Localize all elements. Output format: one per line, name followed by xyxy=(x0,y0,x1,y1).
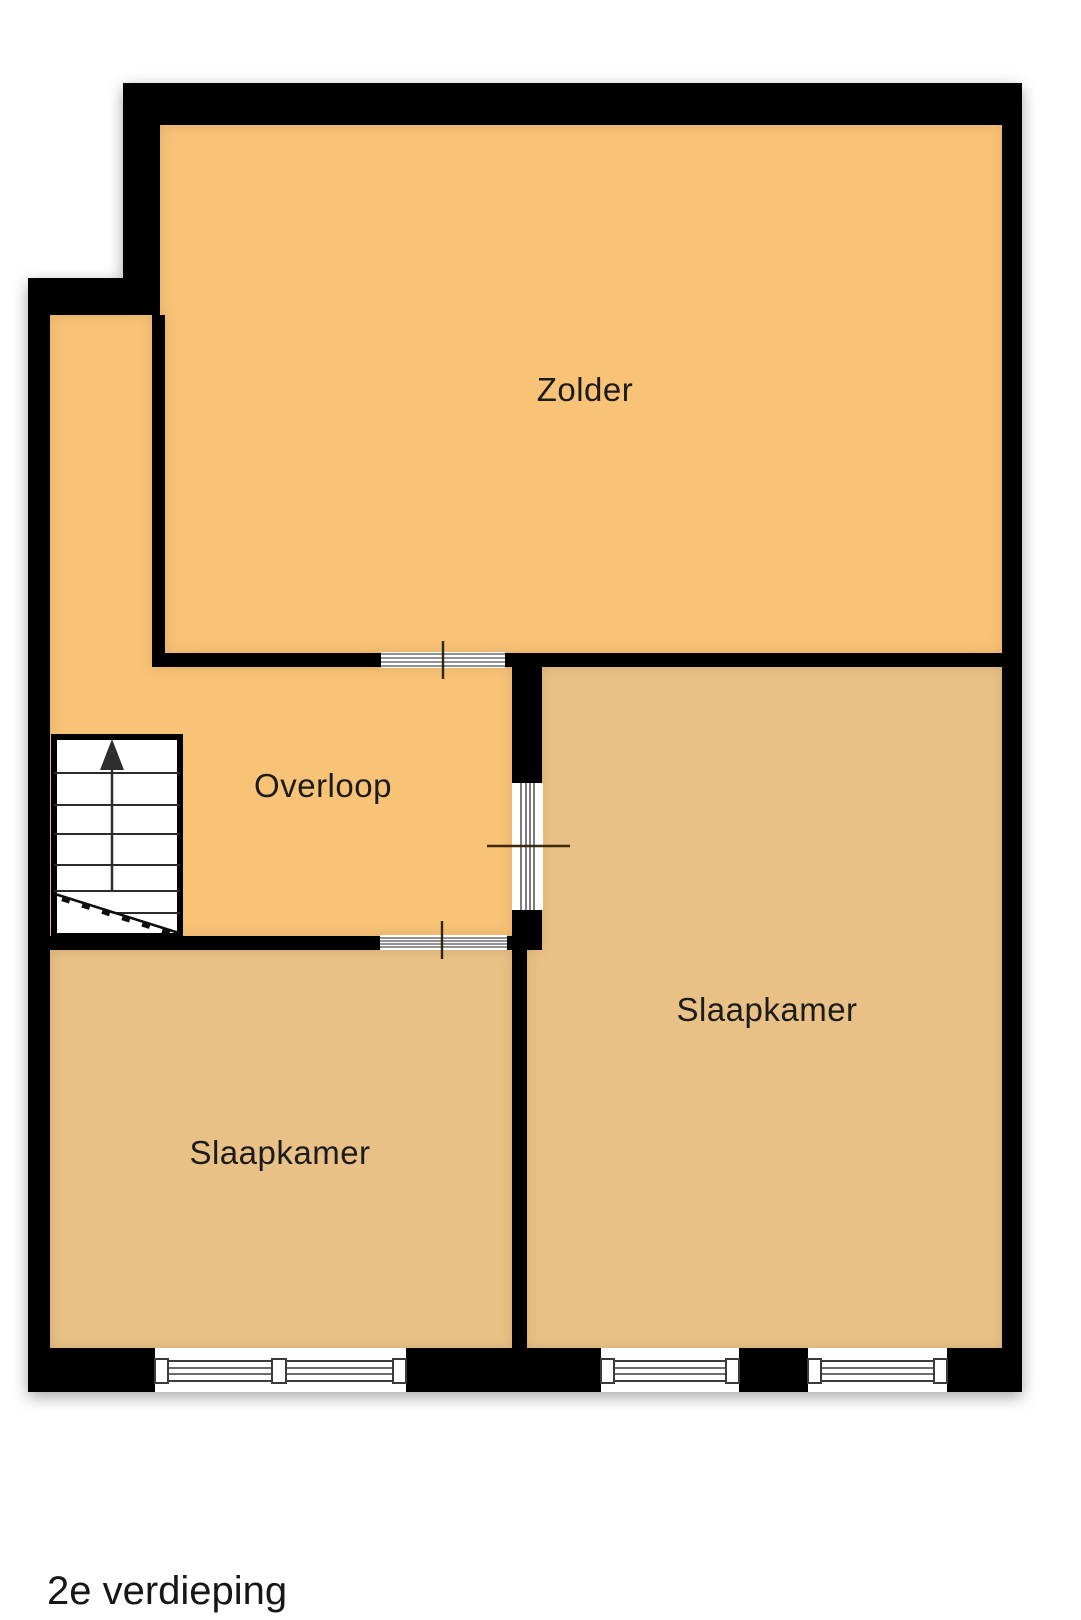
floorplan-page: Zolder Overloop Slaapkamer Slaapkamer 2e… xyxy=(0,0,1081,1620)
room-label-slaapkamer-right: Slaapkamer xyxy=(676,991,857,1028)
building: Zolder Overloop Slaapkamer Slaapkamer xyxy=(28,83,1022,1392)
floorplan-canvas: Zolder Overloop Slaapkamer Slaapkamer 2e… xyxy=(0,0,1081,1620)
window-slaapkamer-right-2 xyxy=(808,1348,947,1392)
staircase xyxy=(54,737,180,936)
window-slaapkamer-right-1 xyxy=(601,1348,739,1392)
room-label-zolder: Zolder xyxy=(537,371,634,408)
room-label-slaapkamer-left: Slaapkamer xyxy=(189,1134,370,1171)
window-slaapkamer-left xyxy=(155,1348,406,1392)
room-label-overloop: Overloop xyxy=(254,767,392,804)
floor-label: 2e verdieping xyxy=(47,1569,287,1613)
